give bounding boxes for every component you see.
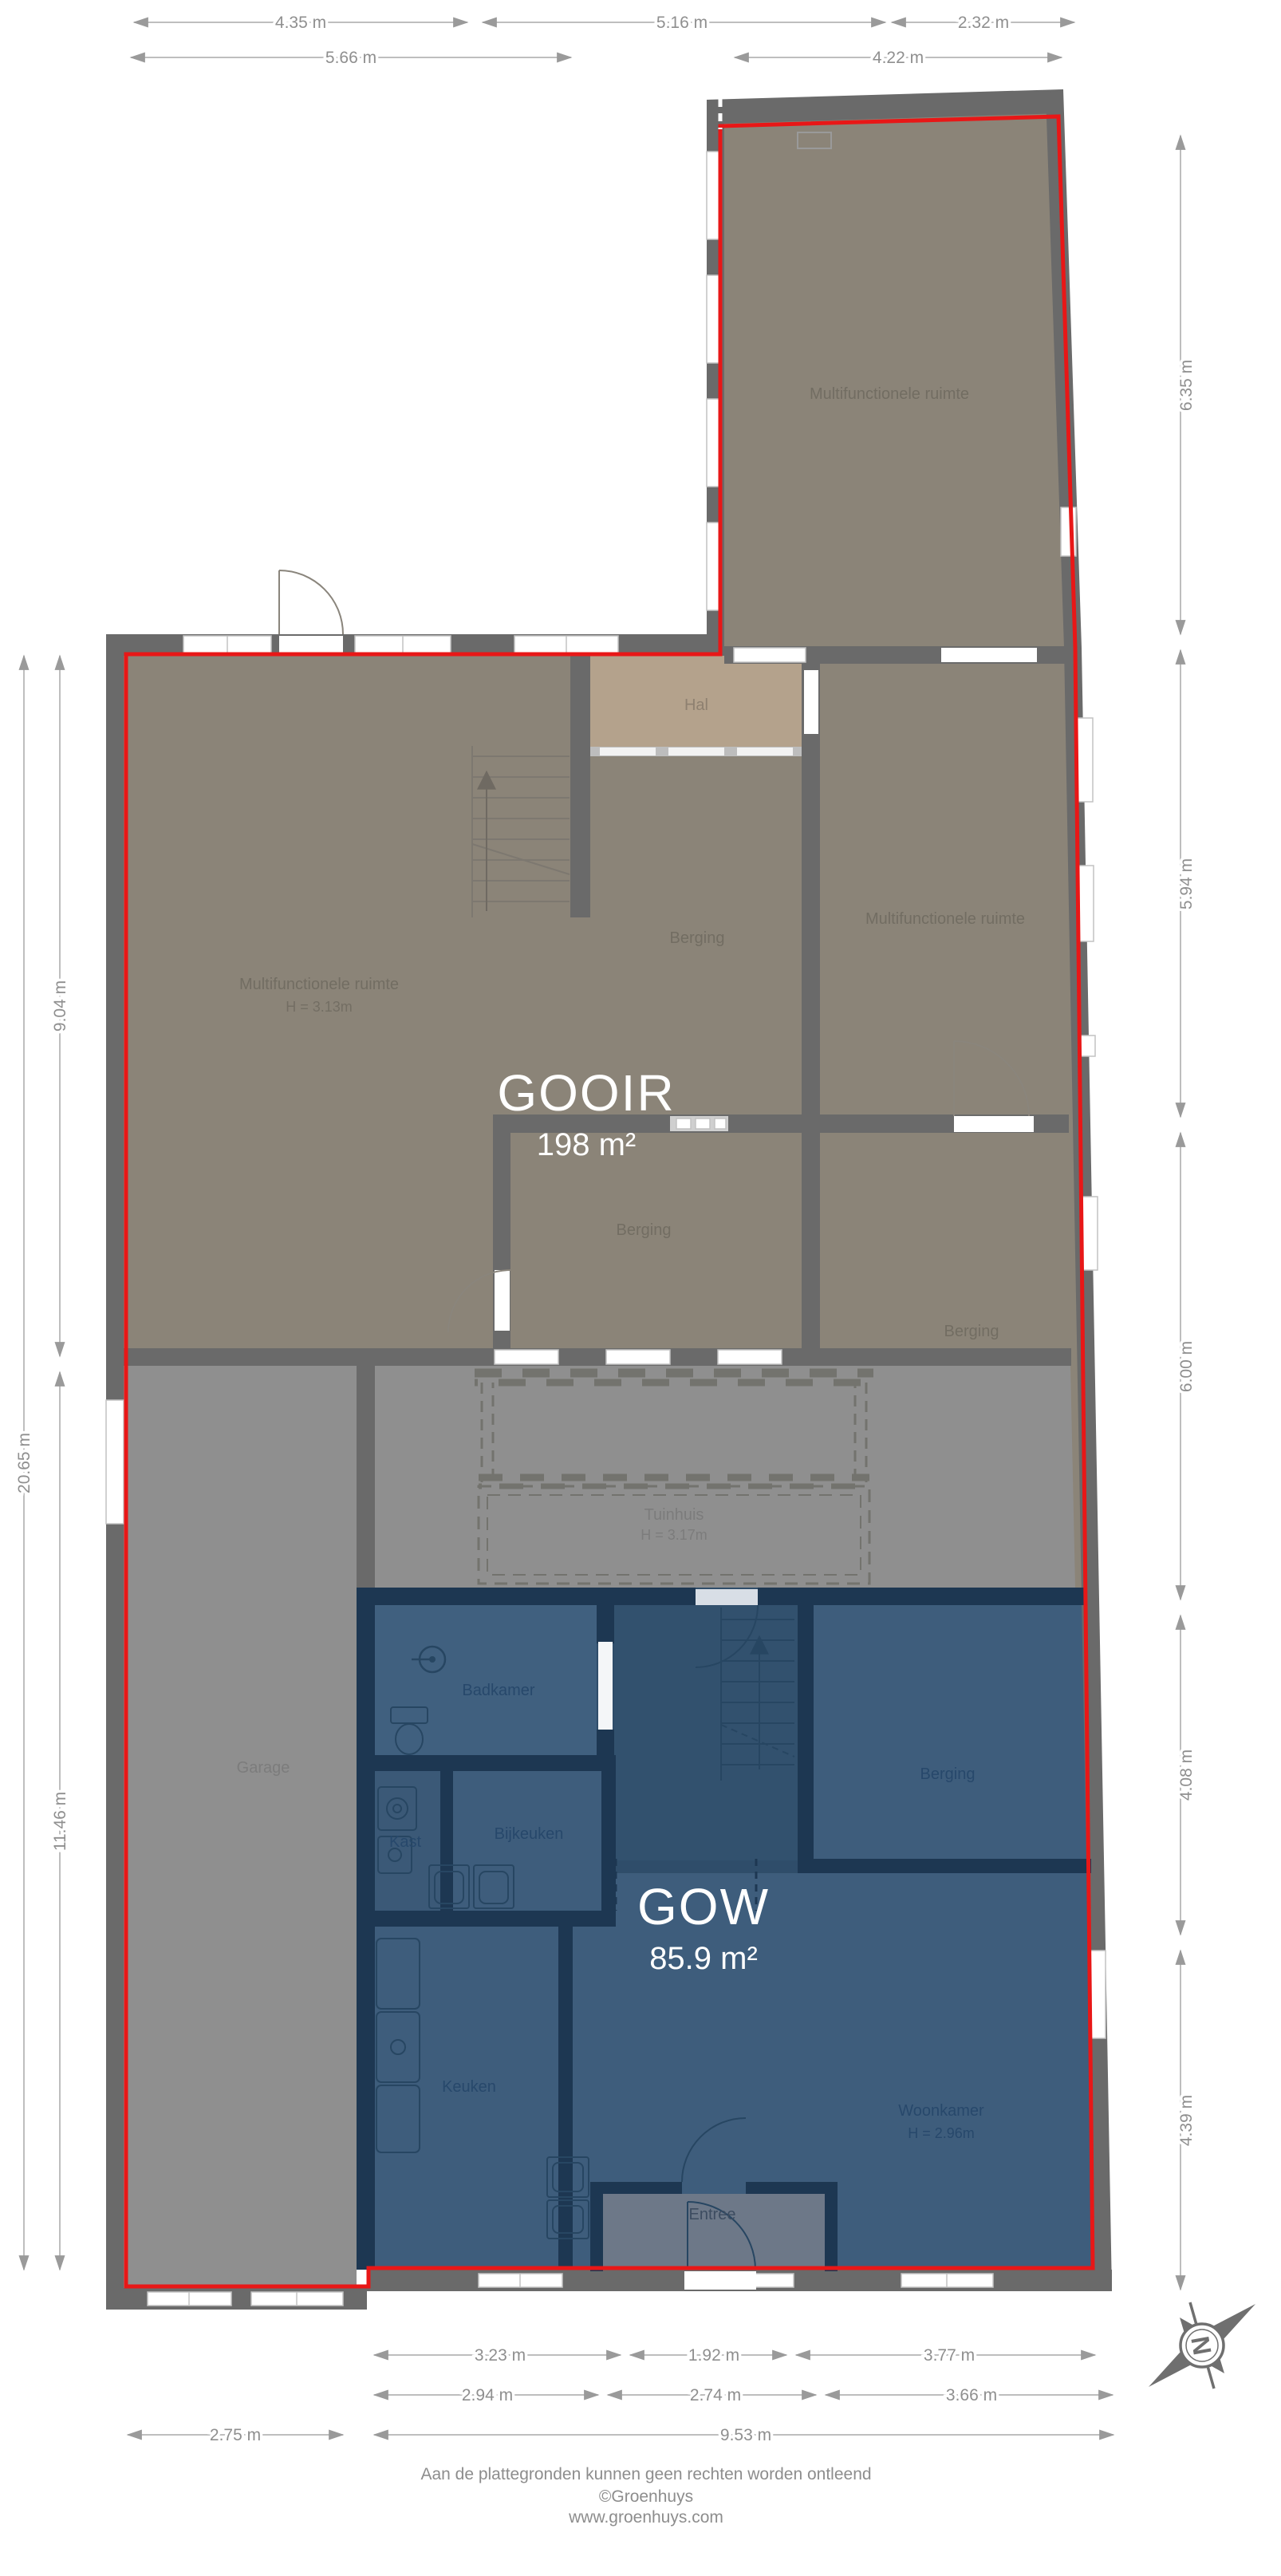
- footer-website: www.groenhuys.com: [568, 2508, 723, 2527]
- dim-bottom2-a: 2.94 m: [462, 2386, 513, 2404]
- room-label-woonkamer: Woonkamer: [898, 2102, 984, 2120]
- keuken-floor: [375, 1927, 558, 2270]
- section-gow-area: 85.9 m²: [649, 1941, 758, 1976]
- dim-left-3: 11.46 m: [51, 1792, 69, 1851]
- room-label-entree: Entree: [689, 2206, 736, 2223]
- entrance-door-arc: [279, 570, 343, 634]
- dim-bottom3-a: 2.75 m: [210, 2426, 261, 2444]
- dim-top1-b: 5.16 m: [656, 14, 708, 32]
- room-label-multi-top: Multifunctionele ruimte: [810, 385, 969, 403]
- room-label-hal: Hal: [684, 696, 708, 714]
- dim-bottom1-b: 1.92 m: [688, 2346, 739, 2365]
- compass-icon: N: [1149, 2302, 1255, 2389]
- dim-left-2: 20.65 m: [15, 1433, 34, 1493]
- dim-top2-a: 5.66 m: [325, 49, 376, 67]
- floorplan-page: Multifunctionele ruimte Hal Berging Mult…: [0, 0, 1281, 2576]
- room-height-woonkamer: H = 2.96m: [908, 2125, 975, 2141]
- dim-right-3: 6.00 m: [1177, 1341, 1196, 1392]
- room-label-garage: Garage: [237, 1759, 290, 1777]
- hal-partition: [590, 747, 802, 756]
- badkamer-floor: [375, 1605, 597, 1757]
- footer-company: ©Groenhuys: [599, 2487, 693, 2506]
- footer: Aan de plattegronden kunnen geen rechten…: [420, 2465, 871, 2527]
- room-label-berging-center: Berging: [670, 929, 725, 947]
- room-label-berging-mid: Berging: [617, 1221, 672, 1239]
- dim-right-5: 4.39 m: [1177, 2095, 1196, 2146]
- room-label-keuken: Keuken: [442, 2078, 496, 2096]
- dim-right-4: 4.08 m: [1177, 1750, 1196, 1801]
- section-gow-name: GOW: [637, 1878, 770, 1935]
- berging-gow-floor: [814, 1605, 1089, 1860]
- dim-bottom1-a: 3.23 m: [475, 2346, 526, 2365]
- dim-bottom3-b: 9.53 m: [720, 2426, 771, 2444]
- room-label-berging-gow: Berging: [920, 1765, 976, 1783]
- dim-top2-b: 4.22 m: [873, 49, 924, 67]
- badkamer-door-leaf: [598, 1642, 613, 1730]
- dim-right-2: 5.94 m: [1177, 858, 1196, 909]
- room-label-badkamer: Badkamer: [462, 1682, 534, 1699]
- dim-bottom1-c: 3.77 m: [924, 2346, 975, 2365]
- room-label-kast: Kast: [389, 1833, 421, 1851]
- section-gooir-name: GOOIR: [497, 1064, 675, 1122]
- dim-top1-a: 4.35 m: [275, 14, 326, 32]
- room-height-tuinhuis: H = 3.17m: [640, 1527, 708, 1543]
- dim-left-1: 9.04 m: [51, 980, 69, 1032]
- garage-floor: [124, 1366, 357, 2288]
- dim-right-1: 6.35 m: [1177, 360, 1196, 411]
- section-gooir-area: 198 m²: [537, 1127, 637, 1162]
- dim-bottom2-b: 2.74 m: [690, 2386, 741, 2404]
- room-label-bijkeuken: Bijkeuken: [495, 1825, 564, 1843]
- floor-fills: [124, 112, 1094, 2288]
- stairhall-floor: [614, 1605, 798, 1860]
- dim-bottom2-c: 3.66 m: [946, 2386, 997, 2404]
- room-label-multi-left: Multifunctionele ruimte: [239, 976, 399, 993]
- footer-disclaimer: Aan de plattegronden kunnen geen rechten…: [420, 2465, 871, 2483]
- room-label-multi-right: Multifunctionele ruimte: [865, 910, 1025, 928]
- room-height-multi-left: H = 3.13m: [286, 999, 353, 1015]
- room-label-tuinhuis: Tuinhuis: [644, 1506, 704, 1524]
- dim-top1-c: 2.32 m: [958, 14, 1009, 32]
- room-label-berging-right: Berging: [944, 1323, 999, 1340]
- floorplan-canvas: Multifunctionele ruimte Hal Berging Mult…: [0, 0, 1281, 2576]
